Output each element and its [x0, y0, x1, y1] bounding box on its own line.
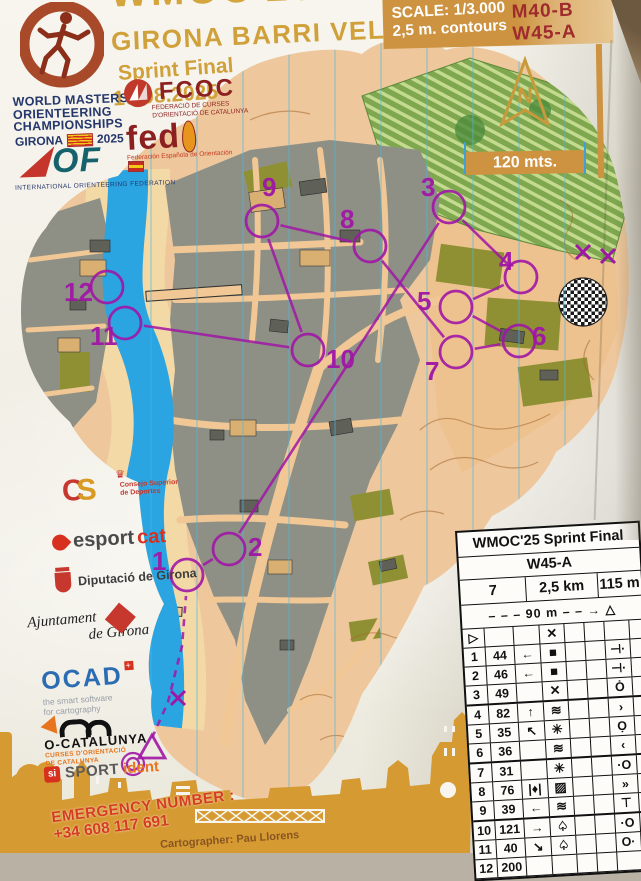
desc-cell: ‹	[610, 735, 637, 754]
desc-cell: 39	[494, 800, 524, 820]
desc-cell	[635, 715, 641, 734]
desc-cell: ⊤	[614, 793, 641, 812]
desc-cell	[617, 851, 641, 870]
desc-cell	[584, 622, 605, 641]
desc-cell: 44	[485, 646, 515, 666]
desc-cell: 82	[488, 704, 518, 724]
control-number-9: 9	[262, 172, 276, 202]
desc-cell: 76	[493, 781, 523, 801]
desc-cell: 6	[469, 743, 492, 762]
class-w45a: W45-A	[512, 20, 613, 45]
desc-cell	[517, 682, 544, 701]
ocatalunya-logo: O-CATALUNYA CURSES D'ORIENTACIÓ DE CATAL…	[42, 708, 149, 767]
desc-cell	[552, 855, 579, 874]
desc-cell	[573, 777, 594, 796]
control-number-2: 2	[248, 532, 262, 562]
north-letter: N	[517, 83, 533, 108]
desc-cell	[567, 661, 588, 680]
desc-cell	[631, 639, 641, 658]
desc-cell: ✳	[547, 759, 574, 778]
desc-cell	[593, 776, 614, 795]
desc-cell: ↘	[525, 837, 552, 856]
desc-cell	[572, 758, 593, 777]
control-number-3: 3	[421, 172, 435, 202]
iof-swoosh-icon	[20, 146, 55, 177]
esportcat-part1: esport	[72, 527, 134, 553]
desc-cell	[590, 718, 611, 737]
desc-cell	[604, 620, 631, 639]
desc-cell: ■	[540, 643, 567, 662]
wmoc-wordmark: WORLD MASTERS ORIENTEERING CHAMPIONSHIPS	[12, 92, 129, 134]
desc-cell	[633, 677, 641, 696]
desc-cell	[637, 754, 641, 773]
csd-crown-icon: ♛	[115, 468, 126, 481]
desc-cell: ▷	[463, 629, 486, 648]
wmoc-runner-logo	[20, 2, 104, 90]
desc-cell: 1	[464, 647, 487, 666]
desc-cell: ↑	[518, 702, 545, 721]
desc-cell: 4	[467, 705, 490, 724]
desc-cell	[514, 625, 541, 644]
csd-caption: Consejo Superior de Deportes	[120, 479, 181, 497]
diputacio-shield-icon	[54, 572, 71, 593]
desc-cell	[520, 740, 547, 759]
desc-cell	[629, 620, 641, 639]
desc-cell: ·O	[611, 755, 638, 774]
ocatalunya-arc2-icon	[85, 719, 112, 738]
desc-cell: ⊣·	[606, 658, 633, 677]
desc-cell: 36	[491, 742, 521, 762]
spain-flag-icon	[128, 161, 144, 172]
route-dashes-pre: – – –	[488, 607, 522, 623]
desc-cell	[575, 816, 596, 835]
desc-length: 2,5 km	[526, 573, 599, 601]
sportident-icon: si	[44, 765, 61, 782]
csd-logo: ♛ CS Consejo Superior de Deportes	[61, 477, 97, 506]
desc-cell: ·O	[615, 813, 641, 832]
desc-cell: 8	[471, 782, 494, 801]
desc-cell: 49	[487, 684, 517, 704]
control-number-5: 5	[417, 286, 431, 316]
ocatalunya-icon	[42, 711, 113, 738]
fcoc-icon	[122, 77, 154, 109]
desc-cell	[484, 627, 514, 647]
desc-cell: ♤	[550, 817, 577, 836]
desc-cell: ←	[515, 644, 542, 663]
control-number-7: 7	[425, 356, 439, 386]
desc-cell: |♦|	[522, 779, 549, 798]
desc-cell: O·	[616, 832, 641, 851]
desc-cell	[526, 856, 553, 875]
iof-letters: OF	[51, 145, 101, 177]
desc-cell: 10	[473, 821, 496, 840]
desc-cell: 3	[466, 685, 489, 704]
route-distance: 90 m	[525, 605, 558, 621]
desc-cell	[595, 815, 616, 834]
sportident-part2: ident	[123, 758, 160, 777]
desc-cell	[578, 854, 599, 873]
desc-cell: 11	[474, 840, 497, 859]
desc-cell: ✳	[544, 720, 571, 739]
desc-cell	[589, 699, 610, 718]
ocad-letters: OCAD	[40, 662, 123, 696]
iof-logo: OF	[24, 145, 102, 178]
desc-cell	[568, 680, 589, 699]
desc-climb: 115 m	[597, 571, 641, 597]
desc-cell	[574, 796, 595, 815]
desc-cell	[586, 660, 607, 679]
desc-cell: Ȯ	[607, 677, 634, 696]
desc-cell: 12	[475, 859, 498, 878]
desc-cell: 35	[489, 723, 519, 743]
control-number-11: 11	[90, 321, 118, 351]
scale-text: SCALE: 1/3.000 2,5 m. contours	[391, 0, 507, 41]
desc-cell: →	[524, 818, 551, 837]
desc-cell	[569, 700, 590, 719]
desc-cell: 5	[468, 724, 491, 743]
desc-cell	[632, 658, 641, 677]
desc-cell: ≋	[543, 701, 570, 720]
desc-cell: ↖	[519, 721, 546, 740]
desc-cell: ■	[541, 662, 568, 681]
desc-cell: 7	[470, 763, 493, 782]
ocad-logo: OCAD the smart software for cartography	[40, 661, 136, 717]
desc-cell	[636, 734, 641, 753]
desc-cell: ⊣·	[605, 639, 632, 658]
desc-course-number: 7	[460, 577, 527, 605]
desc-cell: ←	[516, 663, 543, 682]
class-labels: M40-B W45-A	[511, 0, 612, 46]
control-descriptions-table: WMOC'25 Sprint Final W45-A 7 2,5 km 115 …	[455, 521, 641, 881]
desc-cell	[565, 623, 586, 642]
desc-cell: ≋	[549, 797, 576, 816]
north-arrow: N	[496, 56, 554, 136]
desc-cell: 2	[465, 666, 488, 685]
desc-cell: 121	[495, 820, 525, 840]
esportcat-flame-icon	[49, 531, 72, 554]
fedo-drop-icon	[181, 120, 197, 153]
desc-cell: ←	[523, 798, 550, 817]
route-dashes-post: – – →	[562, 603, 601, 619]
desc-cell	[597, 852, 618, 871]
control-number-12: 12	[64, 277, 93, 307]
desc-cell: 9	[472, 801, 495, 820]
desc-cell	[566, 642, 587, 661]
desc-cell: 200	[497, 858, 527, 878]
desc-cell: ›	[608, 697, 635, 716]
csd-mark-s: S	[76, 473, 98, 507]
scale-bar: 120 mts.	[466, 150, 584, 175]
control-number-6: 6	[532, 321, 546, 351]
control-number-8: 8	[340, 204, 354, 234]
desc-cell	[634, 697, 641, 716]
desc-cell: Ọ	[609, 716, 636, 735]
wmoc-year: 2025	[97, 131, 124, 146]
desc-cell: ≋	[546, 739, 573, 758]
desc-cell: ♤	[551, 836, 578, 855]
control-number-4: 4	[499, 246, 514, 276]
desc-cell	[591, 737, 612, 756]
desc-cell: »	[613, 774, 640, 793]
desc-cell	[577, 835, 598, 854]
esportcat-part2: cat	[136, 525, 166, 549]
desc-cell: 40	[496, 839, 526, 859]
desc-cell: ▨	[548, 778, 575, 797]
desc-cell	[570, 719, 591, 738]
desc-cell: 31	[492, 762, 522, 782]
control-number-10: 10	[326, 344, 355, 374]
desc-cell	[585, 641, 606, 660]
desc-cell	[592, 757, 613, 776]
finish-triangle-icon: △	[605, 602, 616, 617]
swiss-flag-icon	[124, 661, 134, 671]
desc-cell	[571, 738, 592, 757]
desc-cell: ✕	[539, 624, 566, 643]
desc-cell	[594, 795, 615, 814]
desc-cell	[521, 760, 548, 779]
desc-cell	[587, 679, 608, 698]
desc-cell	[596, 833, 617, 852]
desc-rows: ▷✕144←■⊣·246←■⊣·349✕Ȯ482↑≋›535↖✳Ọ636≋‹73…	[463, 620, 641, 880]
desc-cell: 46	[486, 665, 516, 685]
desc-cell: ✕	[542, 681, 569, 700]
